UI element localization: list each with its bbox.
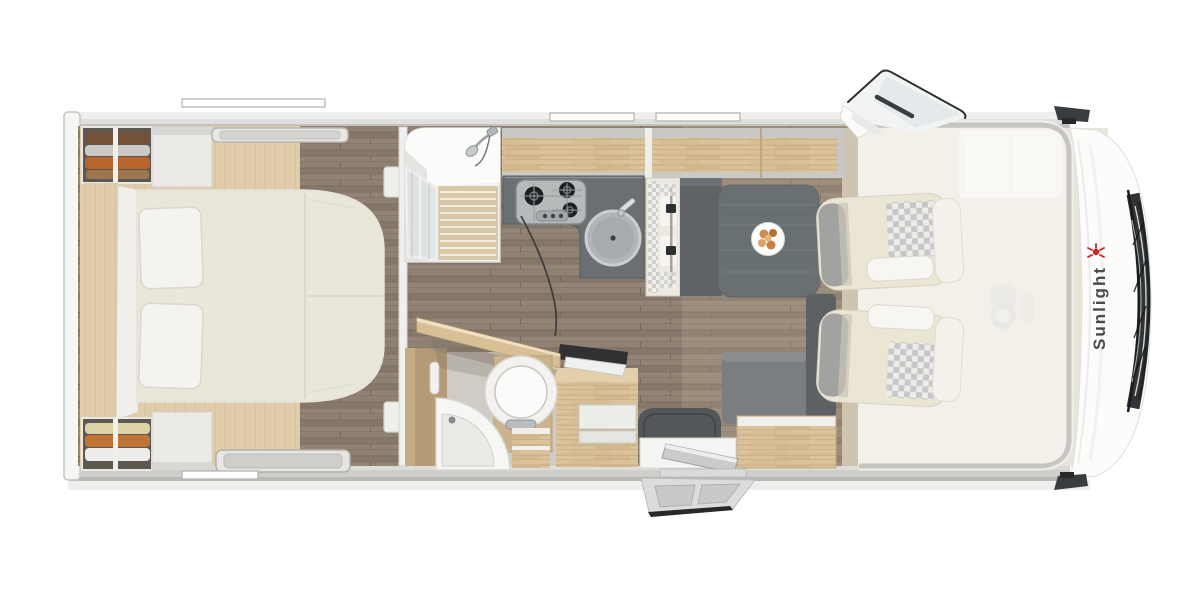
- svg-text:Sunlight: Sunlight: [1090, 266, 1109, 350]
